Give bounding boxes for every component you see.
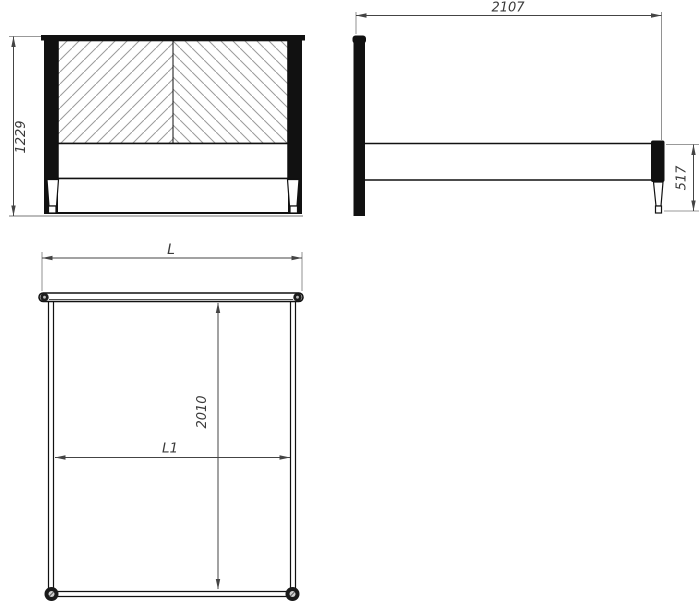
drawing-svg: 1229 2107 xyxy=(0,0,700,605)
arrowhead-left-icon xyxy=(42,256,53,260)
arrowhead-up-icon xyxy=(691,145,695,156)
arrowhead-right-icon xyxy=(292,256,303,260)
technical-drawing: 1229 2107 xyxy=(0,0,700,605)
headboard-cap-left-dot xyxy=(43,296,46,299)
front-leg-right-foot xyxy=(290,206,298,213)
foot-leg-side xyxy=(654,182,664,206)
arrowhead-up-icon xyxy=(216,303,220,314)
frame-band-upper xyxy=(58,144,288,179)
headboard-panel-right-hatch xyxy=(173,41,288,144)
front-view: 1229 xyxy=(9,35,305,216)
plan-view: L 2010 L1 xyxy=(39,242,303,601)
dimension-label-inner-length: 2010 xyxy=(195,395,210,428)
headboard-panel-left-hatch xyxy=(58,41,173,144)
arrowhead-right-icon xyxy=(280,455,291,459)
dimension-label-overall-height: 1229 xyxy=(14,120,29,153)
front-leg-left xyxy=(47,180,59,207)
front-leg-left-foot xyxy=(49,206,57,213)
dimension-label-inner-width: L1 xyxy=(162,441,178,457)
arrowhead-down-icon xyxy=(11,206,15,217)
footboard-post-side xyxy=(651,141,665,183)
arrowhead-up-icon xyxy=(11,37,15,48)
arrowhead-left-icon xyxy=(356,13,367,17)
foot-leg-side-foot xyxy=(656,206,662,213)
dimension-label-footboard-height: 517 xyxy=(675,165,690,191)
arrowhead-right-icon xyxy=(651,13,662,17)
headboard-top-cap xyxy=(41,35,305,41)
dimension-label-overall-length: 2107 xyxy=(491,1,525,16)
side-view: 2107 517 xyxy=(353,1,700,217)
arrowhead-down-icon xyxy=(216,579,220,590)
dimension-label-overall-width: L xyxy=(167,242,175,258)
frame-band-lower xyxy=(58,179,288,214)
headboard-post-side xyxy=(354,39,366,216)
arrowhead-left-icon xyxy=(55,455,66,459)
headboard-cap-right-dot xyxy=(296,296,299,299)
headboard-bar-plan xyxy=(39,293,303,302)
arrowhead-down-icon xyxy=(691,201,695,212)
front-leg-right xyxy=(288,180,300,207)
